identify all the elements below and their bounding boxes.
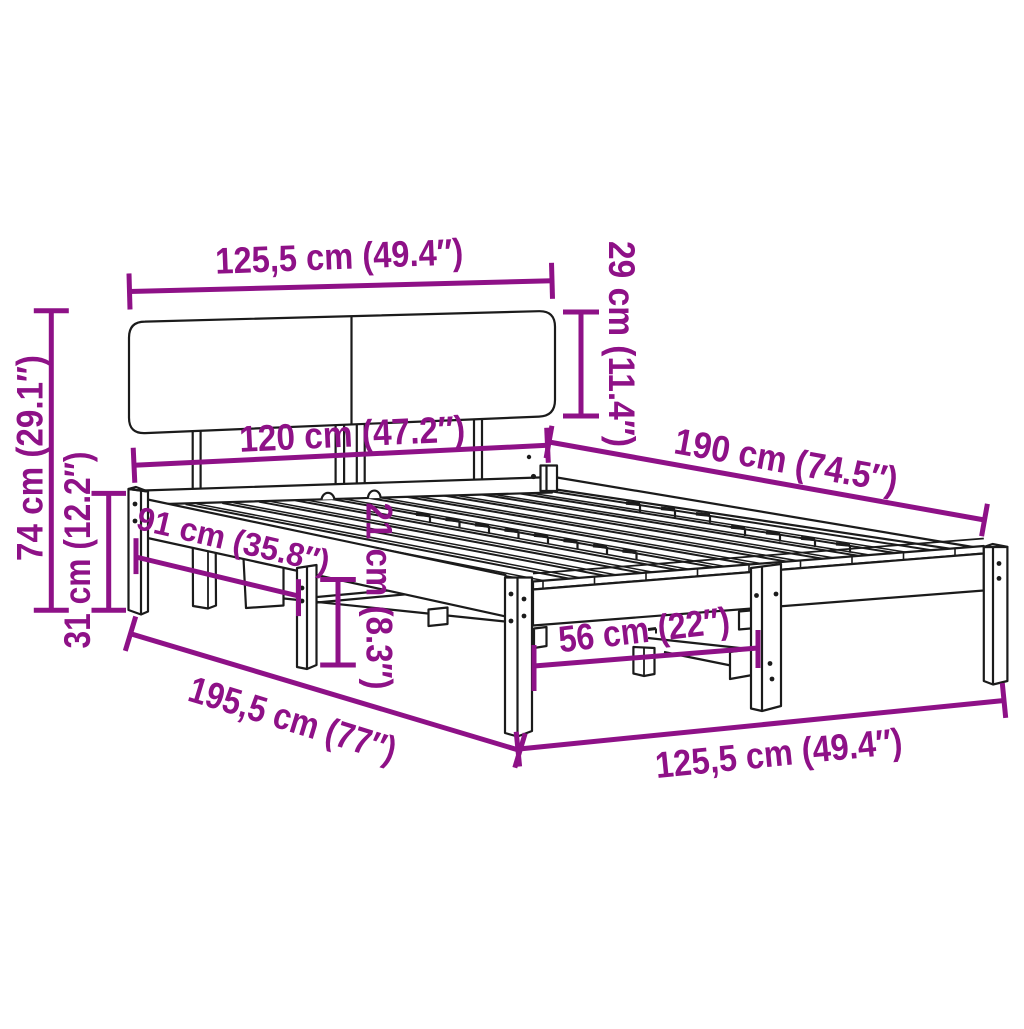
svg-text:29 cm (11.4″): 29 cm (11.4″) bbox=[601, 241, 642, 447]
svg-text:74 cm (29.1″): 74 cm (29.1″) bbox=[10, 355, 51, 561]
svg-text:31 cm (12.2″): 31 cm (12.2″) bbox=[57, 452, 98, 649]
svg-text:21 cm (8.3″): 21 cm (8.3″) bbox=[359, 503, 400, 690]
